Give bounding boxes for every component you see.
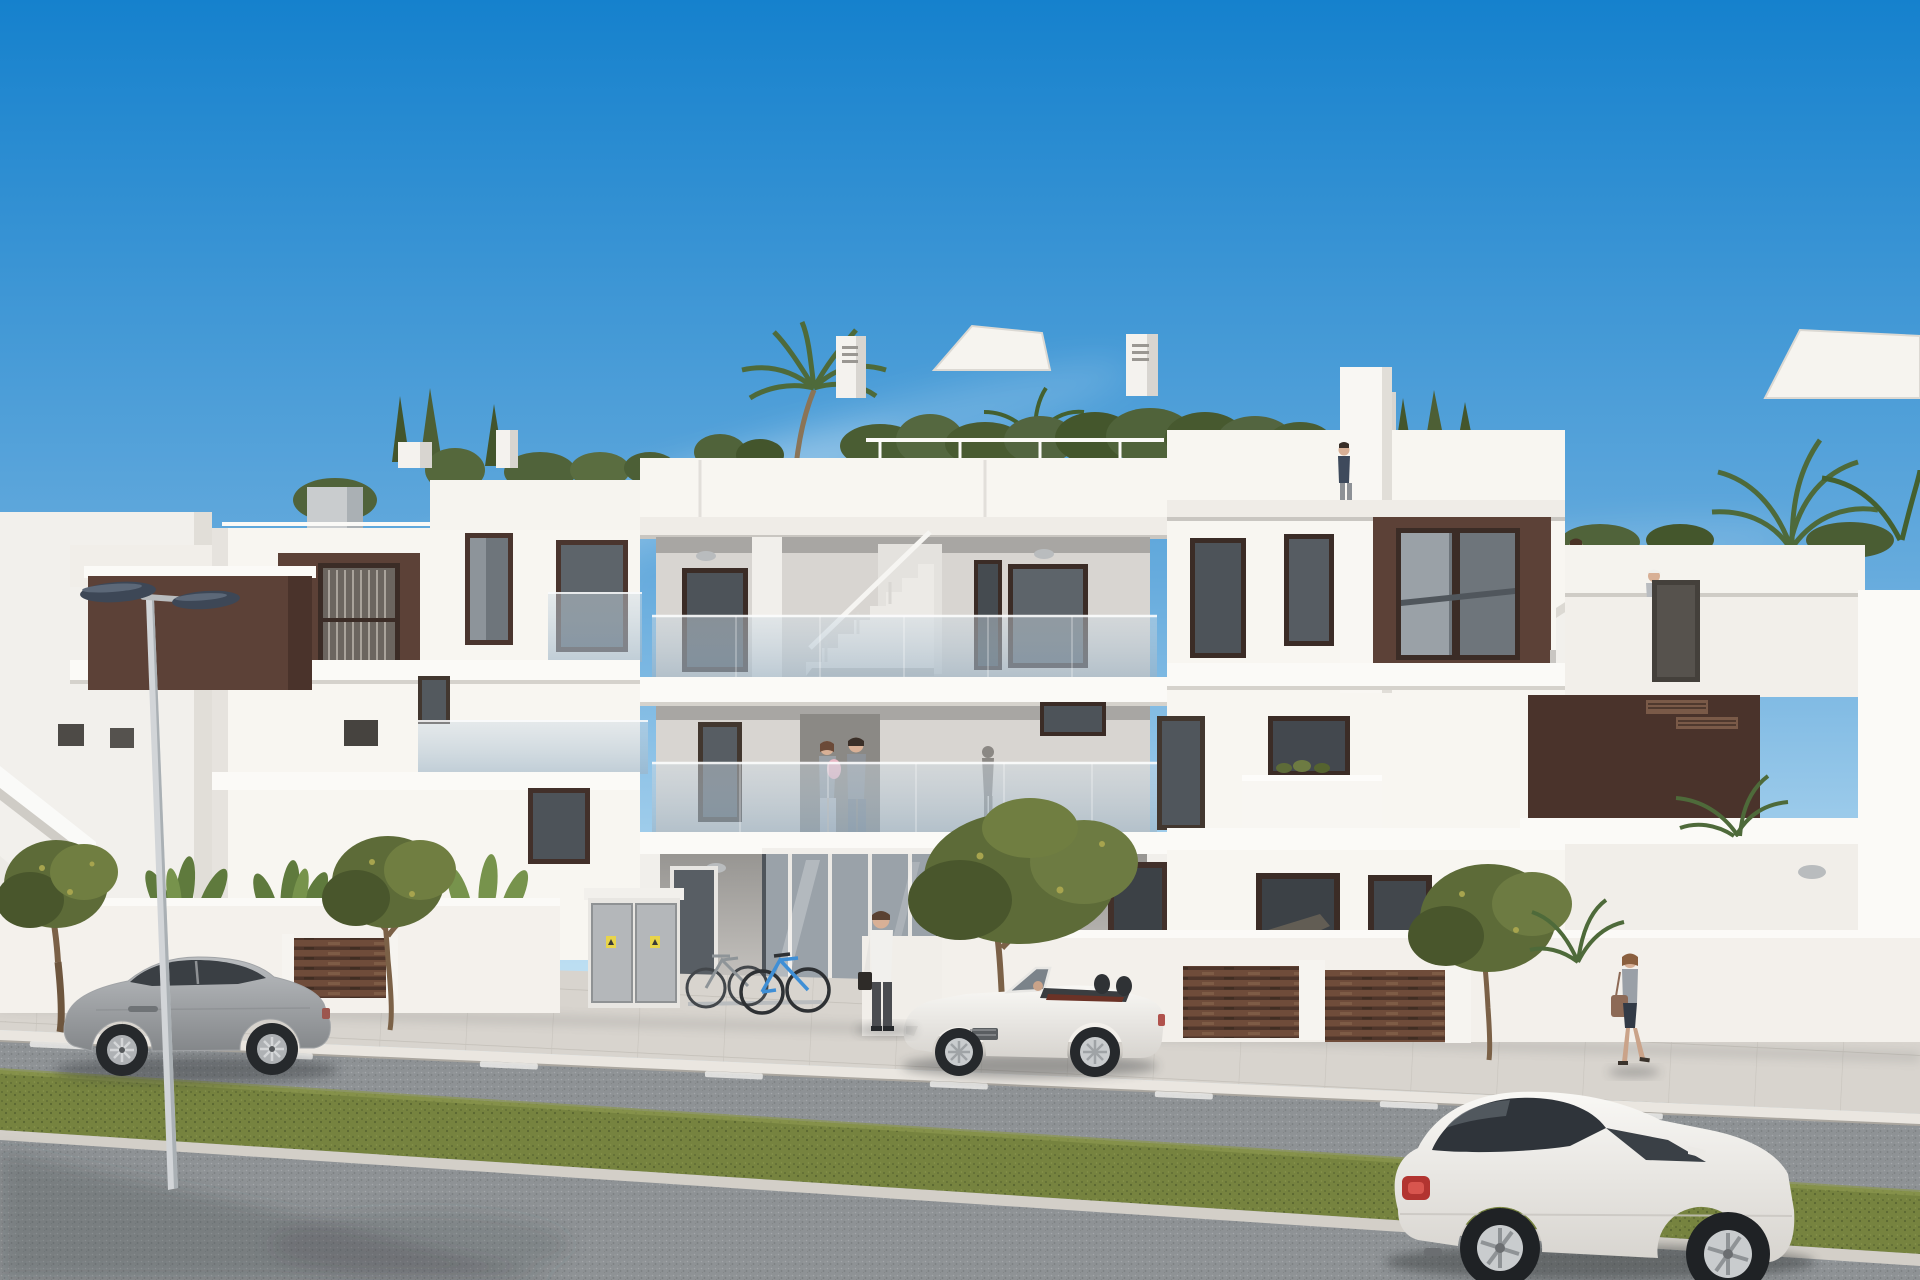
window-upper-right: [1396, 528, 1520, 660]
exhaust: [1424, 1248, 1442, 1256]
center-bay: [640, 458, 1168, 1010]
driver-head: [1033, 981, 1043, 991]
wheel: [935, 1028, 983, 1076]
tail-light: [322, 1008, 330, 1019]
ceiling-light: [1034, 549, 1054, 559]
scene-render: [0, 0, 1920, 1280]
accent-panel-far-right: [1528, 695, 1760, 820]
side-vent: [128, 1006, 158, 1012]
render-viewport: [0, 0, 1920, 1280]
headrest: [1094, 974, 1110, 994]
gate-pillar: [1445, 963, 1471, 1043]
mid-window-planters: [1268, 716, 1350, 776]
glass-balustrade: [548, 592, 642, 662]
window: [344, 720, 378, 746]
glass-balustrade: [418, 720, 648, 774]
wheel: [246, 1023, 298, 1075]
briefcase: [858, 972, 872, 990]
slat-gate-1: [1183, 966, 1299, 1038]
wheel: [1070, 1027, 1120, 1077]
wall-light: [1798, 865, 1826, 879]
utility-cabinets: [584, 888, 684, 1008]
wheel: [96, 1024, 148, 1076]
gate-pillar: [1299, 960, 1325, 1040]
headrest: [1116, 976, 1132, 996]
window: [58, 724, 84, 746]
slat-gate-2: [1325, 970, 1445, 1042]
balcony-parapet: [1242, 775, 1382, 835]
ceiling-light: [696, 551, 716, 561]
window: [110, 728, 134, 748]
tail-light: [1158, 1014, 1165, 1026]
